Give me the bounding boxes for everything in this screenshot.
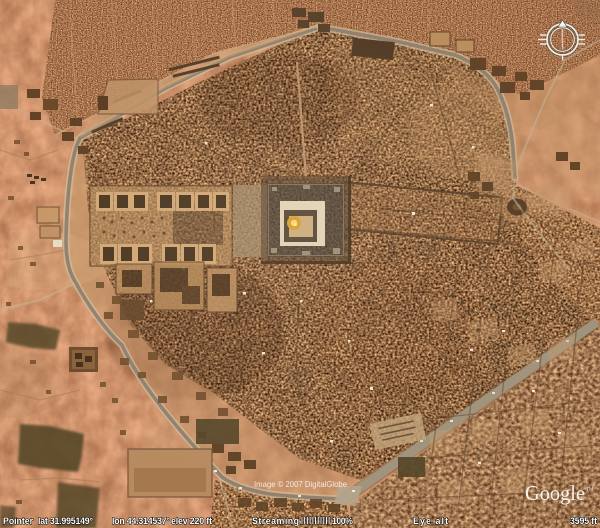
svg-text:lon 44.314537°: lon 44.314537° (112, 516, 170, 526)
svg-text:TM: TM (586, 487, 593, 493)
svg-text:Eye alt: Eye alt (413, 516, 448, 526)
svg-text:Pointer: Pointer (3, 516, 34, 526)
svg-text:Streaming: Streaming (252, 516, 299, 526)
svg-text:elev 220 ft: elev 220 ft (171, 516, 212, 526)
svg-text:Image © 2007 DigitalGlobe: Image © 2007 DigitalGlobe (254, 480, 348, 489)
svg-text:100%: 100% (332, 516, 353, 526)
svg-text:3595 ft: 3595 ft (570, 516, 597, 526)
svg-text:lat 31.995149°: lat 31.995149° (38, 516, 93, 526)
svg-text:Google: Google (525, 481, 585, 505)
